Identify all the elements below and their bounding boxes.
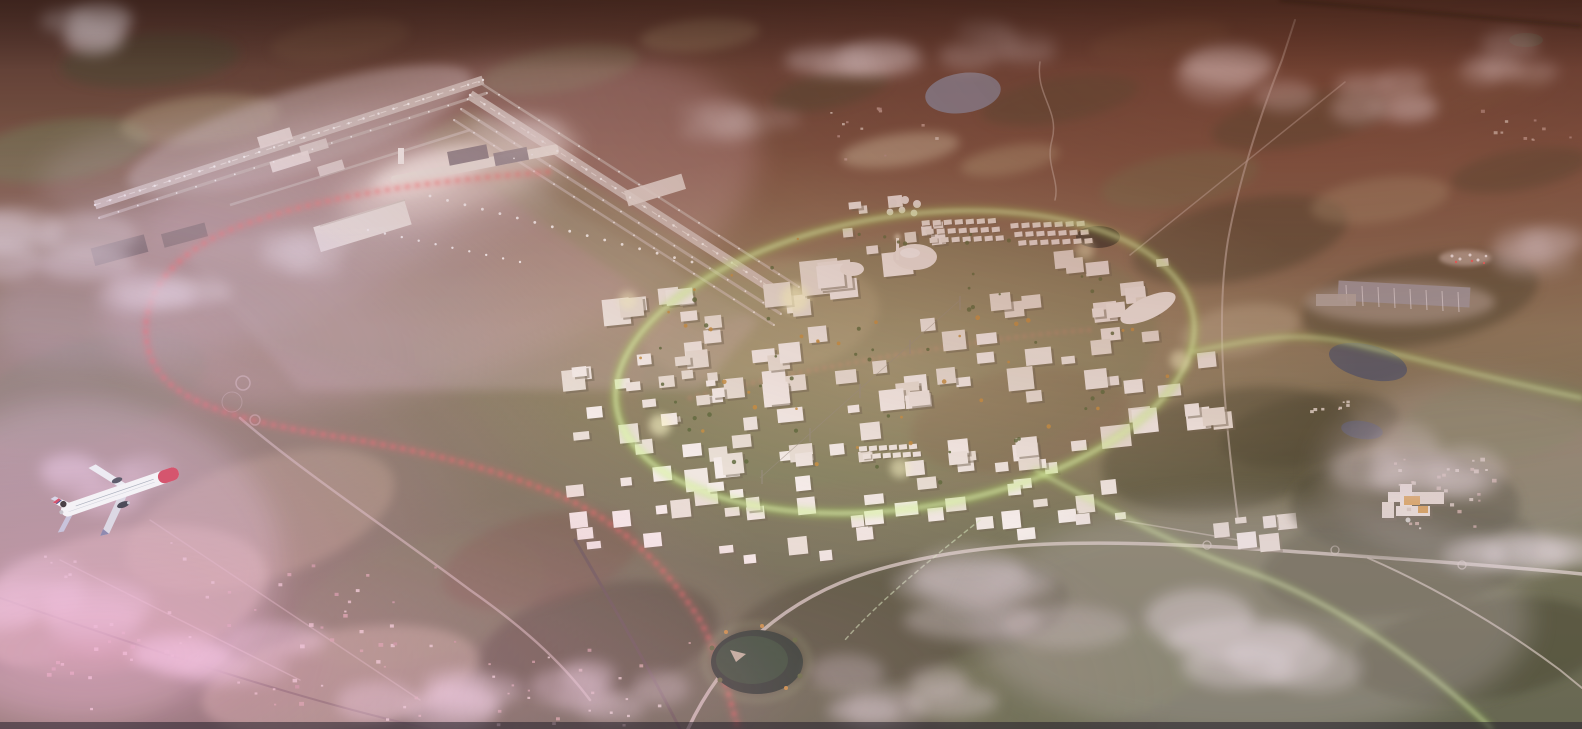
bottom-dark-strip bbox=[0, 722, 1582, 729]
aerial-rendering-stage bbox=[0, 0, 1582, 729]
haze-unifying-pink bbox=[0, 0, 1582, 729]
top-vignette bbox=[0, 0, 1582, 70]
airport-city-aerial-rendering bbox=[0, 0, 1582, 729]
